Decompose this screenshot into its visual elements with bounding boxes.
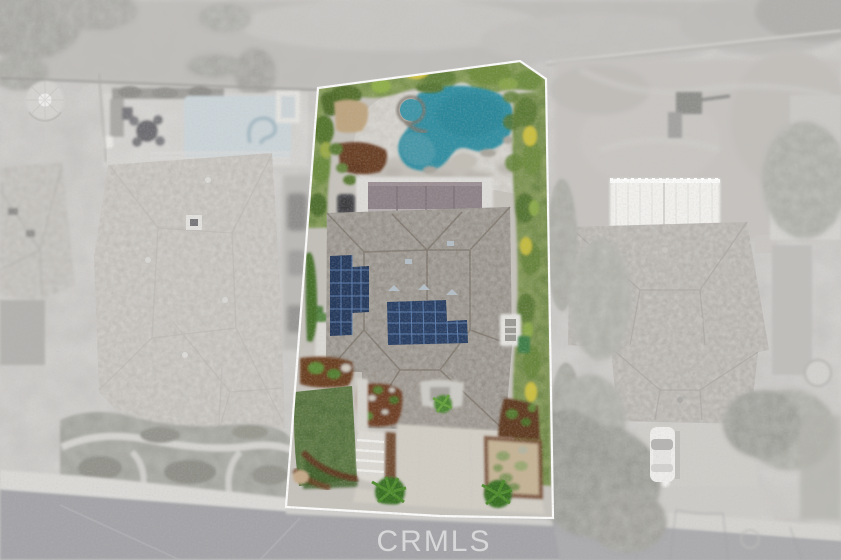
svg-text:CRMLS: CRMLS (376, 525, 491, 558)
